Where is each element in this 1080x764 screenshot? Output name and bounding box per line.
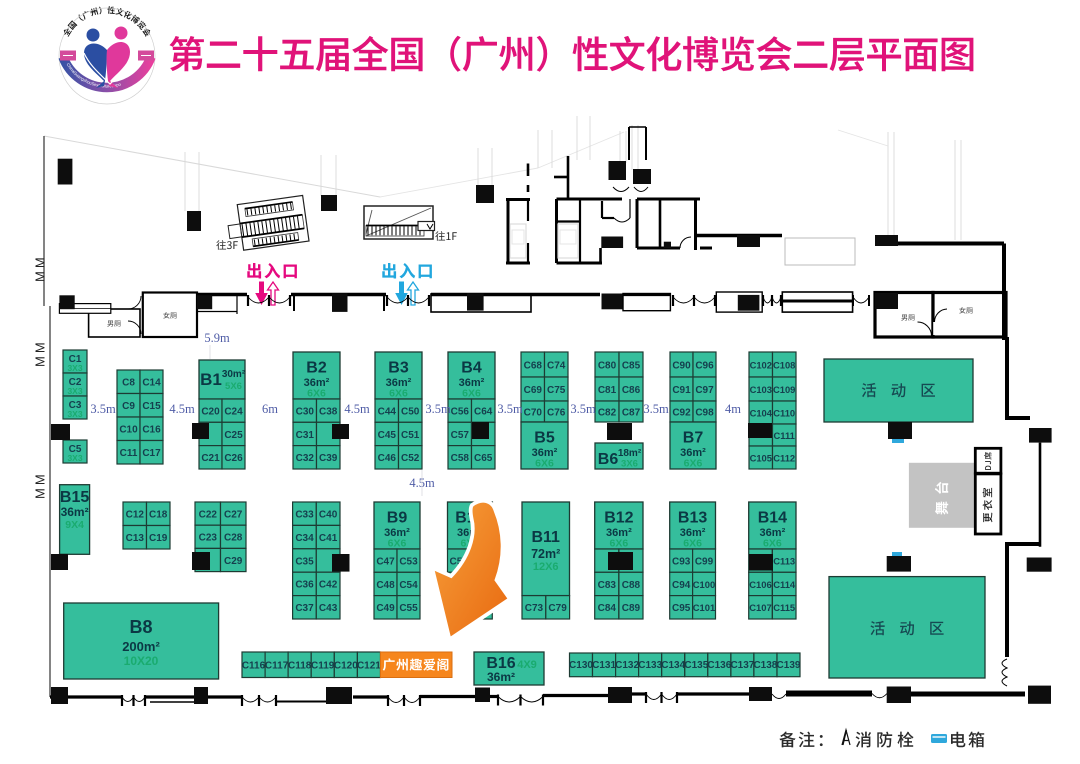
svg-text:C120: C120 bbox=[334, 661, 358, 672]
svg-text:C93: C93 bbox=[672, 556, 691, 567]
svg-text:B2: B2 bbox=[306, 360, 327, 377]
svg-text:C64: C64 bbox=[474, 406, 493, 417]
svg-text:6X6: 6X6 bbox=[684, 458, 703, 470]
svg-text:6X6: 6X6 bbox=[763, 538, 782, 550]
svg-text:6X6: 6X6 bbox=[307, 388, 326, 400]
svg-text:C21: C21 bbox=[201, 453, 220, 464]
svg-text:C91: C91 bbox=[672, 385, 691, 396]
svg-text:6X6: 6X6 bbox=[389, 388, 408, 400]
svg-text:C65: C65 bbox=[474, 453, 493, 464]
svg-text:C106: C106 bbox=[749, 579, 771, 590]
svg-text:C35: C35 bbox=[295, 556, 314, 567]
svg-text:C23: C23 bbox=[199, 533, 218, 544]
svg-text:B13: B13 bbox=[678, 510, 707, 527]
svg-text:C52: C52 bbox=[401, 453, 420, 464]
svg-text:B12: B12 bbox=[604, 510, 633, 527]
svg-text:C26: C26 bbox=[224, 453, 243, 464]
svg-text:C130: C130 bbox=[569, 660, 593, 671]
svg-text:B9: B9 bbox=[387, 510, 408, 527]
svg-text:B8: B8 bbox=[129, 617, 152, 637]
svg-text:C135: C135 bbox=[684, 660, 708, 671]
svg-text:C86: C86 bbox=[622, 385, 641, 396]
svg-text:6X6: 6X6 bbox=[610, 538, 629, 550]
svg-text:3X3: 3X3 bbox=[67, 453, 82, 463]
svg-text:6X6: 6X6 bbox=[388, 538, 407, 550]
svg-text:C114: C114 bbox=[773, 579, 796, 590]
svg-text:C82: C82 bbox=[598, 407, 617, 418]
svg-text:C43: C43 bbox=[319, 603, 338, 614]
svg-text:C69: C69 bbox=[524, 385, 543, 396]
svg-text:C54: C54 bbox=[399, 580, 418, 591]
svg-text:C34: C34 bbox=[295, 533, 314, 544]
svg-text:C56: C56 bbox=[451, 406, 470, 417]
svg-text:C95: C95 bbox=[672, 603, 691, 614]
svg-text:C37: C37 bbox=[295, 603, 314, 614]
svg-text:C46: C46 bbox=[378, 453, 397, 464]
svg-text:C18: C18 bbox=[149, 510, 168, 521]
svg-text:C50: C50 bbox=[401, 406, 420, 417]
svg-text:C81: C81 bbox=[598, 385, 617, 396]
svg-text:C74: C74 bbox=[547, 360, 566, 371]
svg-text:C32: C32 bbox=[296, 453, 315, 464]
svg-text:C138: C138 bbox=[753, 660, 777, 671]
svg-text:C94: C94 bbox=[672, 580, 691, 591]
svg-text:C28: C28 bbox=[224, 533, 243, 544]
svg-text:3X3: 3X3 bbox=[67, 363, 82, 373]
svg-text:5X6: 5X6 bbox=[225, 381, 242, 392]
svg-text:C44: C44 bbox=[378, 406, 397, 417]
svg-text:9X4: 9X4 bbox=[65, 519, 84, 531]
svg-text:C55: C55 bbox=[399, 603, 418, 614]
svg-text:C38: C38 bbox=[319, 406, 338, 417]
svg-text:C107: C107 bbox=[749, 602, 771, 613]
svg-text:C84: C84 bbox=[598, 603, 617, 614]
svg-text:C99: C99 bbox=[695, 556, 714, 567]
svg-text:C98: C98 bbox=[695, 407, 714, 418]
svg-text:C133: C133 bbox=[638, 660, 662, 671]
svg-text:C132: C132 bbox=[615, 660, 639, 671]
svg-text:3.5m: 3.5m bbox=[570, 402, 596, 416]
svg-text:C119: C119 bbox=[311, 661, 335, 672]
svg-text:6X6: 6X6 bbox=[462, 388, 481, 400]
svg-text:C101: C101 bbox=[693, 602, 715, 613]
svg-text:C115: C115 bbox=[773, 602, 795, 613]
svg-text:B15: B15 bbox=[60, 489, 89, 506]
svg-text:C121: C121 bbox=[357, 661, 381, 672]
svg-text:4m: 4m bbox=[725, 402, 741, 416]
svg-text:C80: C80 bbox=[598, 360, 617, 371]
svg-text:C100: C100 bbox=[693, 579, 715, 590]
svg-text:10X20: 10X20 bbox=[124, 654, 159, 668]
svg-text:C102: C102 bbox=[750, 359, 772, 370]
svg-text:C10: C10 bbox=[119, 425, 138, 436]
svg-text:36m²: 36m² bbox=[487, 670, 515, 684]
svg-text:B11: B11 bbox=[531, 529, 560, 546]
svg-text:C118: C118 bbox=[288, 661, 312, 672]
svg-text:C75: C75 bbox=[547, 385, 566, 396]
svg-text:B1: B1 bbox=[200, 370, 222, 389]
svg-text:B4: B4 bbox=[461, 360, 482, 377]
svg-text:C9: C9 bbox=[122, 401, 135, 412]
svg-text:C8: C8 bbox=[122, 378, 135, 389]
svg-text:C13: C13 bbox=[126, 533, 145, 544]
svg-text:C39: C39 bbox=[319, 453, 338, 464]
svg-text:6X6: 6X6 bbox=[535, 458, 554, 470]
svg-text:C14: C14 bbox=[142, 378, 161, 389]
svg-text:C79: C79 bbox=[548, 603, 567, 614]
svg-text:C111: C111 bbox=[774, 430, 795, 441]
svg-text:12X6: 12X6 bbox=[533, 561, 559, 573]
svg-text:C92: C92 bbox=[672, 407, 691, 418]
svg-text:B7: B7 bbox=[683, 430, 704, 447]
svg-text:18m²: 18m² bbox=[618, 448, 642, 459]
svg-text:C31: C31 bbox=[296, 430, 315, 441]
svg-text:C139: C139 bbox=[777, 660, 801, 671]
svg-text:MM: MM bbox=[33, 339, 48, 367]
svg-text:C83: C83 bbox=[598, 580, 617, 591]
svg-text:C48: C48 bbox=[376, 580, 395, 591]
svg-text:C117: C117 bbox=[265, 661, 289, 672]
svg-text:C70: C70 bbox=[524, 407, 543, 418]
svg-text:3.5m: 3.5m bbox=[643, 402, 669, 416]
svg-text:C87: C87 bbox=[622, 407, 641, 418]
svg-text:C33: C33 bbox=[295, 510, 314, 521]
svg-text:C96: C96 bbox=[695, 360, 714, 371]
svg-text:C41: C41 bbox=[319, 533, 338, 544]
svg-text:6X6: 6X6 bbox=[683, 538, 702, 550]
svg-text:C68: C68 bbox=[524, 360, 543, 371]
svg-text:MM: MM bbox=[33, 471, 48, 499]
svg-text:4.5m: 4.5m bbox=[169, 402, 195, 416]
svg-text:200m²: 200m² bbox=[122, 639, 160, 654]
svg-text:3.5m: 3.5m bbox=[90, 402, 116, 416]
svg-text:C36: C36 bbox=[295, 580, 314, 591]
svg-text:C110: C110 bbox=[773, 407, 795, 418]
svg-text:C51: C51 bbox=[401, 430, 420, 441]
svg-text:C19: C19 bbox=[149, 533, 168, 544]
svg-text:C104: C104 bbox=[750, 407, 773, 418]
svg-text:C89: C89 bbox=[622, 603, 641, 614]
svg-text:3X3: 3X3 bbox=[67, 409, 82, 419]
svg-text:C136: C136 bbox=[707, 660, 731, 671]
svg-text:3.5m: 3.5m bbox=[497, 402, 523, 416]
svg-text:C20: C20 bbox=[201, 406, 220, 417]
svg-text:C97: C97 bbox=[695, 385, 714, 396]
svg-text:C11: C11 bbox=[120, 448, 138, 459]
svg-text:3X3: 3X3 bbox=[67, 386, 82, 396]
svg-text:C40: C40 bbox=[319, 510, 338, 521]
svg-text:3X6: 3X6 bbox=[621, 459, 638, 470]
svg-text:C90: C90 bbox=[672, 360, 691, 371]
svg-text:C15: C15 bbox=[142, 401, 161, 412]
svg-text:MM: MM bbox=[33, 254, 48, 282]
svg-text:C85: C85 bbox=[622, 360, 641, 371]
svg-text:C24: C24 bbox=[224, 406, 243, 417]
svg-text:6m: 6m bbox=[262, 402, 278, 416]
svg-text:C47: C47 bbox=[376, 556, 395, 567]
svg-text:C116: C116 bbox=[242, 661, 266, 672]
svg-text:3.5m: 3.5m bbox=[425, 402, 451, 416]
svg-text:C108: C108 bbox=[773, 359, 795, 370]
svg-text:C12: C12 bbox=[126, 510, 145, 521]
svg-text:C30: C30 bbox=[296, 406, 315, 417]
svg-text:C53: C53 bbox=[399, 556, 418, 567]
svg-text:C25: C25 bbox=[224, 430, 243, 441]
svg-text:C88: C88 bbox=[622, 580, 641, 591]
svg-text:C76: C76 bbox=[547, 407, 566, 418]
svg-text:C131: C131 bbox=[592, 660, 616, 671]
svg-text:4X9: 4X9 bbox=[517, 659, 537, 671]
svg-text:C105: C105 bbox=[750, 452, 772, 463]
svg-text:B3: B3 bbox=[388, 360, 409, 377]
svg-text:C134: C134 bbox=[661, 660, 685, 671]
svg-text:5.9m: 5.9m bbox=[204, 331, 230, 345]
svg-text:B5: B5 bbox=[534, 430, 555, 447]
svg-text:C17: C17 bbox=[142, 448, 161, 459]
svg-text:C112: C112 bbox=[773, 452, 795, 463]
svg-text:C45: C45 bbox=[378, 430, 397, 441]
svg-text:C42: C42 bbox=[319, 580, 338, 591]
svg-text:72m²: 72m² bbox=[531, 547, 560, 561]
svg-text:30m²: 30m² bbox=[222, 369, 246, 380]
svg-text:B14: B14 bbox=[758, 510, 787, 527]
svg-text:C103: C103 bbox=[750, 384, 772, 395]
svg-text:C109: C109 bbox=[773, 384, 795, 395]
svg-text:C29: C29 bbox=[224, 556, 243, 567]
svg-text:C137: C137 bbox=[730, 660, 754, 671]
svg-text:B6: B6 bbox=[598, 451, 619, 468]
svg-text:C22: C22 bbox=[199, 509, 218, 520]
svg-text:C49: C49 bbox=[376, 603, 395, 614]
svg-text:C57: C57 bbox=[451, 430, 470, 441]
svg-text:4.5m: 4.5m bbox=[344, 402, 370, 416]
svg-text:C113: C113 bbox=[773, 555, 795, 566]
svg-text:C27: C27 bbox=[224, 509, 243, 520]
svg-text:C73: C73 bbox=[525, 603, 544, 614]
svg-text:36m²: 36m² bbox=[61, 505, 89, 519]
svg-text:C58: C58 bbox=[451, 453, 470, 464]
svg-text:C16: C16 bbox=[142, 425, 161, 436]
